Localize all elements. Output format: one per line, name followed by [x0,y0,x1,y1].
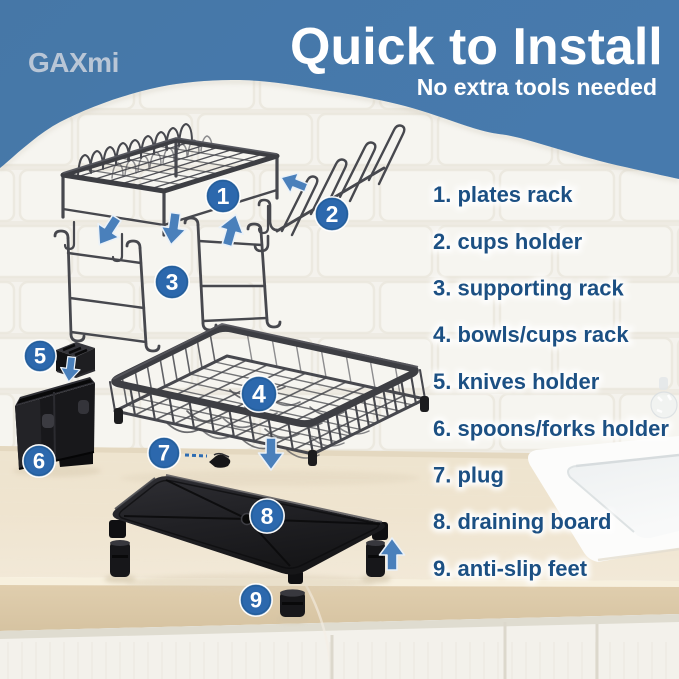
svg-text:2. cups holder: 2. cups holder [433,229,583,254]
svg-text:8: 8 [261,503,274,529]
svg-text:9. anti-slip feet: 9. anti-slip feet [433,556,588,581]
svg-text:8. draining board: 8. draining board [433,509,611,534]
svg-text:5: 5 [34,344,46,369]
svg-text:GAXmi: GAXmi [28,47,119,78]
svg-text:6: 6 [33,449,45,474]
svg-text:3. supporting rack: 3. supporting rack [433,276,624,301]
svg-text:1: 1 [217,183,230,209]
svg-text:6. spoons/forks holder: 6. spoons/forks holder [433,416,669,441]
svg-text:No extra tools needed: No extra tools needed [417,74,657,100]
svg-text:2: 2 [326,201,339,227]
svg-text:1. plates rack: 1. plates rack [433,182,573,207]
svg-text:3: 3 [166,269,179,295]
svg-text:4: 4 [252,381,266,409]
svg-text:7: 7 [158,441,170,466]
svg-text:9: 9 [250,588,262,613]
svg-text:5. knives holder: 5. knives holder [433,369,600,394]
svg-text:4. bowls/cups rack: 4. bowls/cups rack [433,322,629,347]
svg-text:Quick to Install: Quick to Install [290,18,663,76]
svg-text:7. plug: 7. plug [433,463,504,488]
